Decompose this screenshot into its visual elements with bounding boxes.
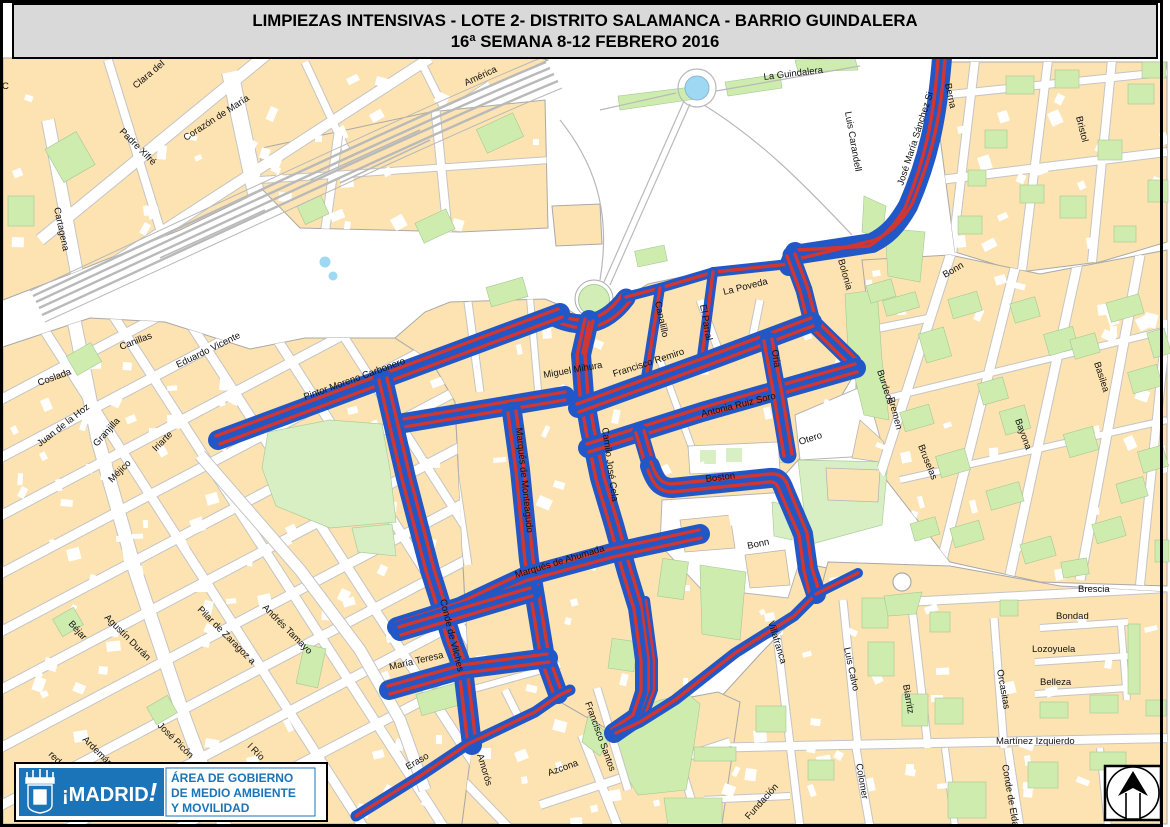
- svg-text:Martínez Izquierdo: Martínez Izquierdo: [996, 736, 1075, 747]
- svg-text:Y MOVILIDAD: Y MOVILIDAD: [171, 801, 250, 815]
- svg-text:C: C: [2, 81, 9, 92]
- svg-text:16ª SEMANA 8-12 FEBRERO 2016: 16ª SEMANA 8-12 FEBRERO 2016: [451, 32, 720, 51]
- svg-text:Lozoyuela: Lozoyuela: [1032, 644, 1076, 655]
- svg-text:Bondad: Bondad: [1056, 611, 1089, 622]
- svg-text:Belleza: Belleza: [1040, 677, 1072, 688]
- svg-text:LIMPIEZAS INTENSIVAS - LOTE 2-: LIMPIEZAS INTENSIVAS - LOTE 2- DISTRITO …: [252, 11, 917, 30]
- svg-text:ÁREA DE GOBIERNO: ÁREA DE GOBIERNO: [171, 770, 293, 785]
- svg-text:Brescia: Brescia: [1078, 584, 1110, 595]
- svg-text:DE MEDIO AMBIENTE: DE MEDIO AMBIENTE: [171, 786, 296, 800]
